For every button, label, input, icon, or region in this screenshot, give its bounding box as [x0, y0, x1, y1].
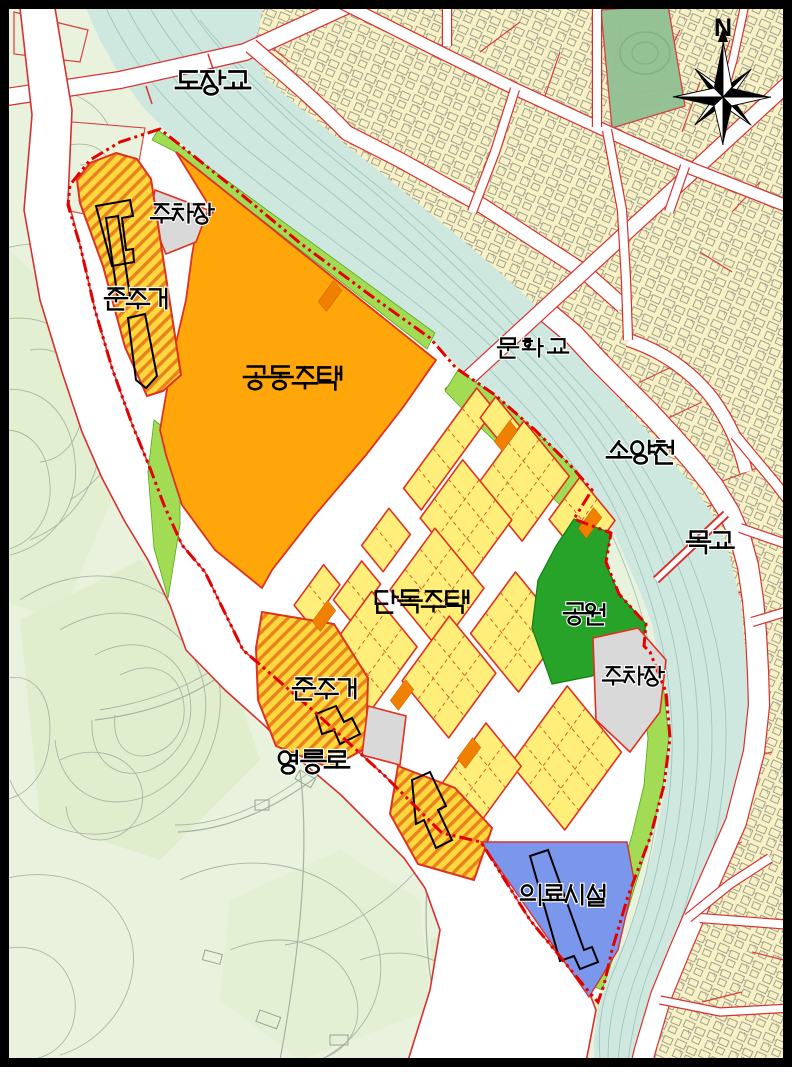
- svg-text:N: N: [714, 14, 732, 42]
